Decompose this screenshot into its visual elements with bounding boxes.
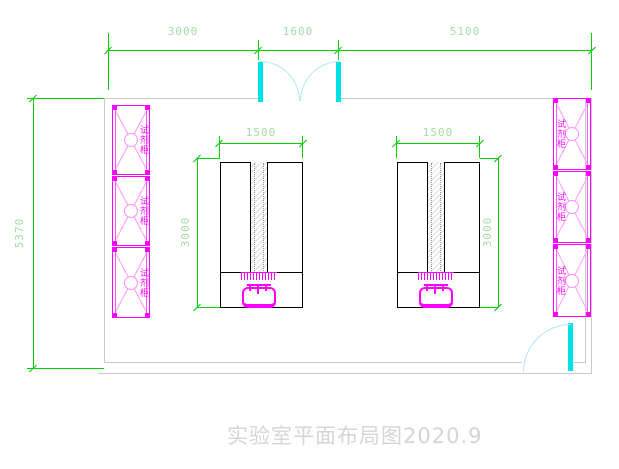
extension-line [27,98,104,99]
cabinet-corner [145,170,150,175]
dimension-line-bench-width [396,143,480,144]
cabinet-corner [145,105,150,110]
cabinet-corner [553,238,558,243]
cabinet-corner [586,98,591,103]
dimension-text-bench-depth: 3000 [180,199,192,265]
shelf-stipple [431,163,441,271]
cabinet-knob-circle [124,276,138,290]
dimension-text-wall-height: 5370 [14,200,26,266]
extension-line [396,136,397,158]
door-swing-arc-right [300,61,340,101]
cabinet-knob-circle [124,133,138,147]
dimension-line-top [108,50,592,51]
dimension-line-left [33,98,34,368]
door-swing-arc-left [260,61,300,101]
extension-line [197,307,220,308]
extension-line [479,136,480,158]
extension-line [197,158,220,159]
cabinet-corner [145,247,150,252]
cabinet-corner [145,176,150,181]
cabinet-corner [553,171,558,176]
cabinet-knob-circle [565,127,579,141]
extension-line [302,136,303,158]
extension-line [591,33,592,90]
sink-basin [242,287,276,308]
cabinet-label: 试剂柜 [555,192,565,222]
cabinet-corner [586,312,591,317]
cabinet-corner [145,241,150,246]
sink-grille [418,272,454,280]
wall-top-left-segment [104,98,258,99]
door-swing-arc-bottom [523,324,571,372]
cabinet-corner [112,105,117,110]
drawing-title: 实验室平面布局图2020.9 [227,420,482,450]
cabinet-label: 试剂柜 [138,196,148,226]
cabinet-corner [586,165,591,170]
dimension-text-top-left: 3000 [150,26,216,38]
cabinet-label: 试剂柜 [555,266,565,296]
reagent-cabinet: 试剂柜 [112,247,150,318]
dimension-text-top-right: 5100 [432,26,498,38]
cabinet-corner [553,312,558,317]
sink-grille [241,272,277,280]
cabinet-knob-circle [565,200,579,214]
dimension-text-bench-width: 1500 [216,127,306,139]
dimension-line-bench-depth [197,158,198,307]
bench-center-shelf [250,162,268,272]
wall-left [104,98,105,363]
cabinet-label: 试剂柜 [138,268,148,298]
cabinet-corner [586,171,591,176]
cabinet-corner [586,238,591,243]
cabinet-corner [112,247,117,252]
reagent-cabinet: 试剂柜 [112,105,150,175]
reagent-cabinet: 试剂柜 [553,98,591,170]
reagent-cabinet: 试剂柜 [553,171,591,243]
extension-line [27,368,104,369]
wall-bottom-outer [98,373,592,374]
cabinet-knob-circle [124,204,138,218]
cabinet-corner [145,313,150,318]
wall-right-outer [591,98,592,374]
cabinet-corner [553,98,558,103]
sink-basin [419,287,453,308]
dimension-text-top-mid: 1600 [265,26,331,38]
cabinet-label: 试剂柜 [138,125,148,155]
reagent-cabinet: 试剂柜 [553,244,591,317]
wall-top-right-segment [340,98,585,99]
dimension-text-bench-width: 1500 [393,127,483,139]
cabinet-corner [586,244,591,249]
dimension-text-bench-depth: 3000 [482,199,494,265]
reagent-cabinet: 试剂柜 [112,176,150,246]
wall-bottom-inner-left [104,362,522,363]
cabinet-label: 试剂柜 [555,119,565,149]
extension-line [219,136,220,158]
cabinet-corner [112,176,117,181]
cabinet-corner [553,165,558,170]
dimension-line-bench-depth [498,158,499,307]
floor-plan-canvas: 3000 1600 5100 5370 试剂柜 试剂柜 试剂柜 试剂柜 [0,0,619,469]
bench-center-shelf [427,162,445,272]
shelf-stipple [254,163,264,271]
cabinet-corner [553,244,558,249]
cabinet-corner [112,170,117,175]
cabinet-corner [112,241,117,246]
extension-line [108,33,109,90]
cabinet-corner [112,313,117,318]
dimension-line-bench-width [219,143,303,144]
cabinet-knob-circle [565,274,579,288]
